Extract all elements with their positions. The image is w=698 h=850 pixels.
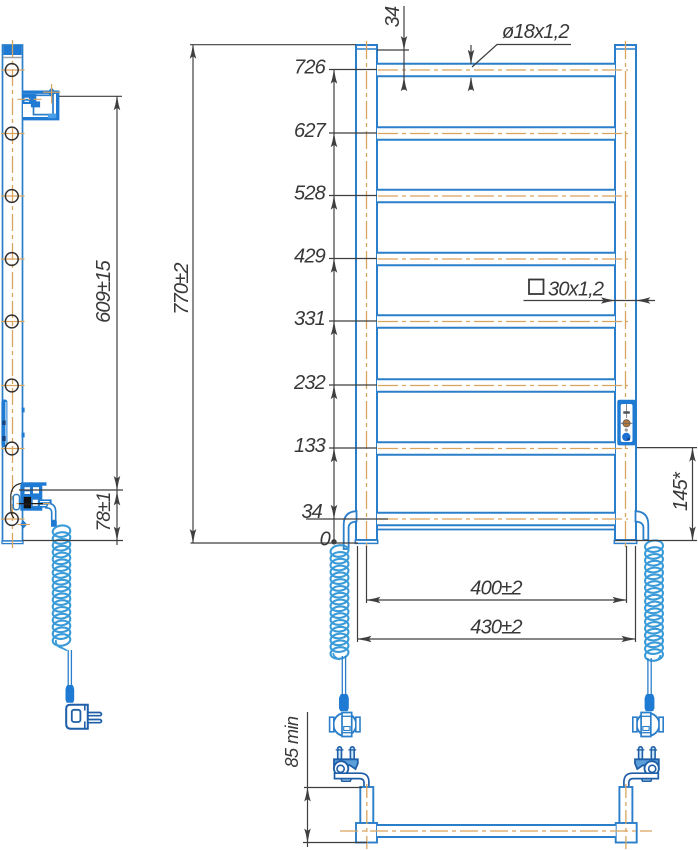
- svg-text:726: 726: [294, 57, 327, 79]
- svg-text:133: 133: [294, 435, 326, 457]
- svg-text:78±1: 78±1: [94, 493, 115, 532]
- svg-text:85 min: 85 min: [282, 716, 302, 768]
- svg-text:429: 429: [294, 246, 326, 268]
- svg-text:0: 0: [320, 529, 331, 551]
- svg-text:430±2: 430±2: [470, 617, 522, 639]
- svg-text:627: 627: [294, 120, 327, 142]
- svg-text:232: 232: [293, 372, 326, 394]
- svg-text:ø18x1,2: ø18x1,2: [502, 21, 569, 43]
- svg-text:34: 34: [382, 6, 404, 27]
- svg-text:528: 528: [294, 183, 326, 205]
- svg-text:609±15: 609±15: [93, 259, 115, 322]
- svg-text:145*: 145*: [670, 471, 692, 511]
- svg-text:30x1,2: 30x1,2: [548, 279, 604, 301]
- svg-text:400±2: 400±2: [470, 578, 522, 600]
- svg-text:770±2: 770±2: [171, 263, 193, 315]
- svg-text:331: 331: [294, 308, 325, 330]
- svg-text:34: 34: [301, 501, 322, 523]
